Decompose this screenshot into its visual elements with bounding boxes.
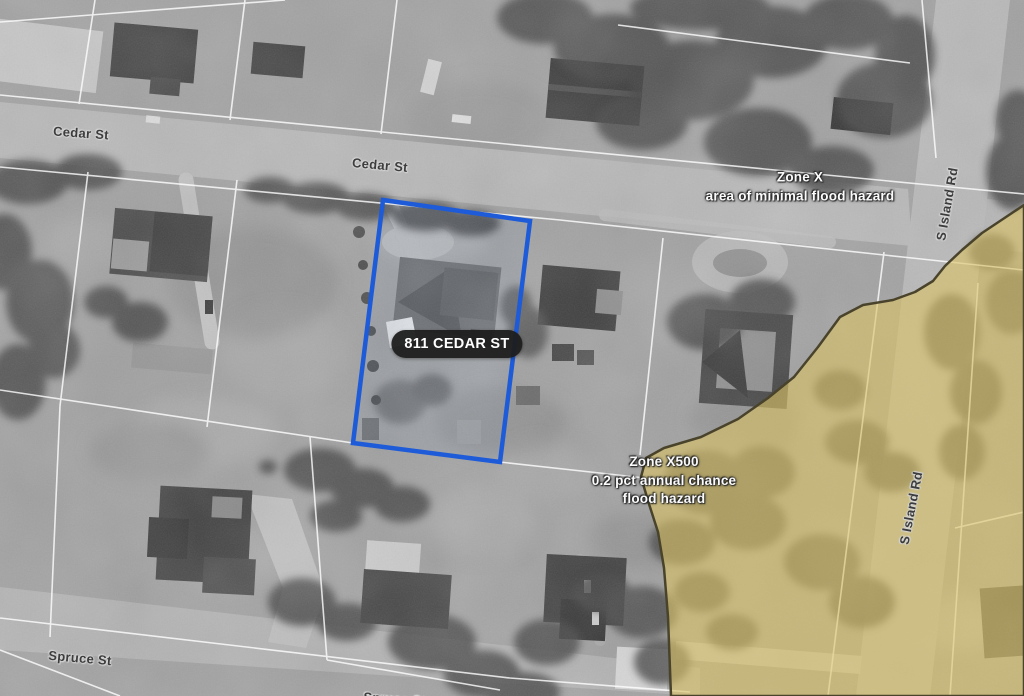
flood-map-canvas[interactable]: Cedar St Cedar St Spruce St Spruce St S … (0, 0, 1024, 696)
parcel-address-pill[interactable]: 811 CEDAR ST (391, 330, 522, 358)
